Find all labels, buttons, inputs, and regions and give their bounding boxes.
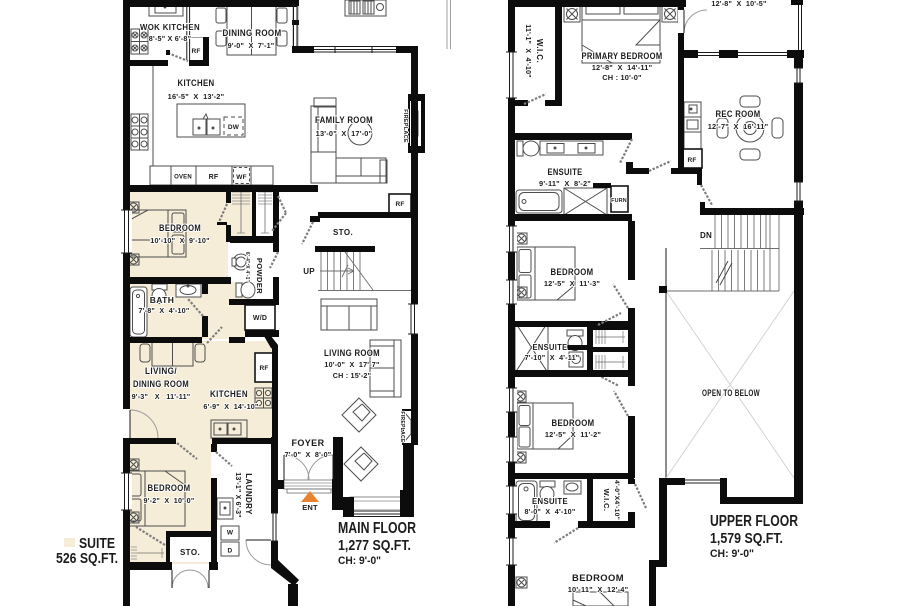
svg-text:12'-8" X 14'-11": 12'-8" X 14'-11" [592,63,653,72]
svg-text:11'-1" X 4'-10": 11'-1" X 4'-10" [524,24,531,77]
svg-text:STO.: STO. [333,228,353,237]
svg-text:7'-0" X 8'-0": 7'-0" X 8'-0" [285,450,332,459]
svg-text:6'-4" X 4'-1": 6'-4" X 4'-1" [244,252,250,283]
svg-text:13'-1" X 6'-3": 13'-1" X 6'-3" [234,472,241,517]
svg-text:LAUNDRY: LAUNDRY [244,473,253,515]
svg-text:REC ROOM: REC ROOM [716,109,761,120]
svg-text:8'-0" X 4'-10": 8'-0" X 4'-10" [525,507,576,516]
svg-text:OPEN TO BELOW: OPEN TO BELOW [702,388,760,398]
svg-text:10'-11" X 12'-4": 10'-11" X 12'-4" [568,585,629,594]
svg-text:W: W [227,530,234,537]
svg-text:KITCHEN: KITCHEN [210,389,248,399]
svg-text:7'-8" X 4'-10": 7'-8" X 4'-10" [139,306,190,315]
svg-text:WF: WF [236,174,247,181]
svg-text:RF: RF [259,365,268,372]
svg-text:KITCHEN: KITCHEN [178,78,215,89]
svg-text:FIREPLACE: FIREPLACE [399,411,405,443]
svg-text:CH: 9'-0": CH: 9'-0" [710,548,754,560]
svg-text:FURN: FURN [611,198,627,204]
svg-text:STO.: STO. [180,548,200,557]
svg-text:RF: RF [209,174,219,181]
svg-text:CH: 9'-0": CH: 9'-0" [338,555,381,567]
svg-text:FAMILY ROOM: FAMILY ROOM [315,115,373,126]
svg-text:FOYER: FOYER [291,438,324,448]
svg-text:W.I.C.: W.I.C. [535,39,544,63]
svg-text:BEDROOM: BEDROOM [551,267,594,277]
svg-text:FIREPLACE: FIREPLACE [402,109,408,143]
svg-text:9'-11" X 8'-2": 9'-11" X 8'-2" [539,179,591,188]
svg-text:RF: RF [191,48,200,55]
svg-text:W/D: W/D [253,315,267,322]
svg-text:13'-0" X 17'-0": 13'-0" X 17'-0" [316,129,373,138]
svg-text:LIVING ROOM: LIVING ROOM [324,348,380,358]
svg-text:1,277 SQ.FT.: 1,277 SQ.FT. [338,537,411,554]
svg-text:DW: DW [228,124,240,131]
svg-text:10'-0" X 17'-7": 10'-0" X 17'-7" [324,360,379,369]
svg-text:RF: RF [687,157,696,164]
svg-text:1,579 SQ.FT.: 1,579 SQ.FT. [710,530,783,547]
svg-text:POWDER: POWDER [255,258,264,294]
svg-text:12'-8" X 10'-5": 12'-8" X 10'-5" [711,0,766,8]
svg-text:BEDROOM: BEDROOM [159,223,201,233]
svg-text:W.I.C.: W.I.C. [602,489,611,512]
svg-text:16'-5" X 13'-2": 16'-5" X 13'-2" [168,92,225,101]
svg-text:MAIN FLOOR: MAIN FLOOR [338,520,416,537]
svg-text:DINING ROOM: DINING ROOM [133,379,189,389]
svg-text:10'-10" X 9'-10": 10'-10" X 9'-10" [150,236,209,245]
svg-text:12'-5" X 11'-3": 12'-5" X 11'-3" [544,279,601,288]
svg-text:WOK KITCHEN: WOK KITCHEN [140,22,200,32]
svg-text:OVEN: OVEN [174,175,192,181]
svg-text:9'-0" X 7'-1": 9'-0" X 7'-1" [228,41,275,50]
svg-text:UP: UP [303,267,315,276]
svg-text:RF: RF [395,201,404,208]
svg-text:7'-10" X 4'-11": 7'-10" X 4'-11" [525,353,580,362]
svg-text:PRIMARY BEDROOM: PRIMARY BEDROOM [582,51,663,62]
svg-text:LIVING/: LIVING/ [145,366,177,376]
svg-text:D: D [228,548,233,555]
svg-text:UPPER FLOOR: UPPER FLOOR [710,513,798,530]
svg-text:CH : 15'-2": CH : 15'-2" [333,371,371,380]
svg-text:ENT: ENT [302,503,318,512]
svg-text:9'-2" X 10'-0": 9'-2" X 10'-0" [144,496,195,505]
svg-text:4'-0"X4'-10": 4'-0"X4'-10" [613,480,620,520]
svg-text:BEDROOM: BEDROOM [552,418,595,428]
svg-text:ENSUITE: ENSUITE [533,342,568,352]
svg-text:BEDROOM: BEDROOM [572,573,624,583]
svg-text:ENSUITE: ENSUITE [548,167,583,177]
svg-text:DN: DN [700,231,712,240]
svg-text:12'-7" X 16'-11": 12'-7" X 16'-11" [708,122,769,131]
svg-text:526 SQ.FT.: 526 SQ.FT. [56,550,118,567]
svg-text:DINING ROOM: DINING ROOM [223,28,282,38]
svg-text:CH : 10'-0": CH : 10'-0" [602,73,642,82]
svg-text:BATH: BATH [150,295,175,305]
svg-text:12'-5" X 11'-2": 12'-5" X 11'-2" [545,430,602,439]
svg-text:6'-9" X 14'-10": 6'-9" X 14'-10" [203,402,258,411]
svg-text:ENSUITE: ENSUITE [532,496,568,506]
svg-text:8'-5" X 6'-8": 8'-5" X 6'-8" [149,34,191,43]
svg-text:9'-3" X 11'-11": 9'-3" X 11'-11" [132,392,191,401]
svg-text:BEDROOM: BEDROOM [148,483,191,493]
